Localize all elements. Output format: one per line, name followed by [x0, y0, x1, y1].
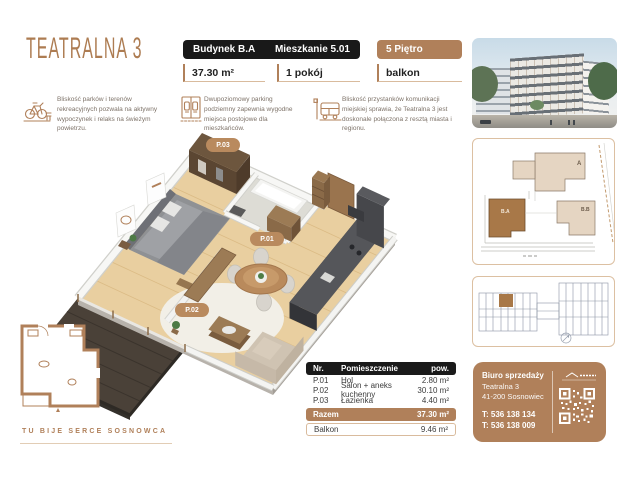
pedestrian [550, 120, 552, 125]
building-apartment-badge: Budynek B.A Mieszkanie 5.01 [183, 40, 360, 59]
divider [552, 371, 553, 433]
total-area: 37.30 m² [417, 410, 449, 419]
tree [588, 62, 617, 100]
room-label-p03: P.03 [206, 138, 240, 152]
qr-code [559, 388, 595, 424]
floor-plan-box [472, 276, 615, 347]
row-area: 2.80 m² [422, 376, 449, 385]
spec-balcony: balkon [377, 64, 462, 82]
miniplan-2d [14, 320, 110, 416]
building-main-facade [510, 53, 584, 118]
car [480, 120, 491, 124]
pedestrian [573, 120, 575, 125]
site-label-a: A [577, 161, 582, 167]
site-label-ba: B.A [501, 209, 510, 215]
floor-badge: 5 Piętro [377, 40, 462, 59]
site-label-bb: B.B [581, 207, 590, 213]
row-nr: P.01 [313, 376, 341, 385]
header-name: Pomieszczenie [341, 364, 431, 373]
site-plan: A B.B B.A [473, 139, 614, 264]
highlighted-unit [499, 294, 513, 307]
tagline: TU BIJE SERCE SOSNOWCA [22, 428, 167, 435]
table-row: P.03 Łazienka 4.40 m² [306, 395, 456, 405]
room-label-p02: P.02 [175, 303, 209, 317]
header-nr: Nr. [313, 364, 341, 373]
partner-logo [559, 371, 599, 383]
rooms-table-header: Nr. Pomieszczenie pow. [306, 362, 456, 375]
floor-plan-drawing [473, 277, 614, 346]
total-label: Razem [313, 410, 417, 419]
balcony-area: 9.46 m² [421, 425, 448, 434]
apartment-label: Mieszkanie 5.01 [275, 44, 350, 55]
balcony-label: Balkon [314, 425, 421, 434]
street-ground [472, 115, 617, 128]
row-area: 30.10 m² [417, 386, 449, 395]
bathroom-shelf [312, 171, 330, 210]
brochure-page: TEATRALNA 3 Budynek B.A Mieszkanie 5.01 … [0, 0, 640, 480]
row-nr: P.02 [313, 386, 341, 395]
spec-rooms: 1 pokój [277, 64, 360, 82]
row-name: Łazienka [341, 396, 422, 405]
bus-icon [312, 94, 342, 124]
sales-office-card: Biuro sprzedaży Teatralna 3 41-200 Sosno… [473, 362, 606, 442]
brand-logo: TEATRALNA 3 [26, 34, 143, 67]
room-label-p01: P.01 [250, 232, 284, 246]
spec-area: 37.30 m² [183, 64, 265, 82]
site-plan-box: A B.B B.A [472, 138, 615, 265]
table-total-row: Razem 37.30 m² [306, 408, 456, 421]
table-row: P.02 Salon + aneks kuchenny 30.10 m² [306, 385, 456, 395]
row-nr: P.03 [313, 396, 341, 405]
building-label: Budynek B.A [193, 44, 255, 55]
park-bicycle-icon [22, 94, 52, 124]
header-area: pow. [431, 364, 449, 373]
underground-parking-icon [176, 94, 206, 124]
building-render-photo [472, 38, 617, 128]
rooms-table: Nr. Pomieszczenie pow. P.01 Hol 2.80 m² … [306, 362, 456, 436]
tagline-rule [20, 443, 172, 444]
pedestrian [568, 120, 570, 125]
table-balcony-row: Balkon 9.46 m² [306, 423, 456, 436]
bush [530, 100, 544, 110]
row-area: 4.40 m² [422, 396, 449, 405]
